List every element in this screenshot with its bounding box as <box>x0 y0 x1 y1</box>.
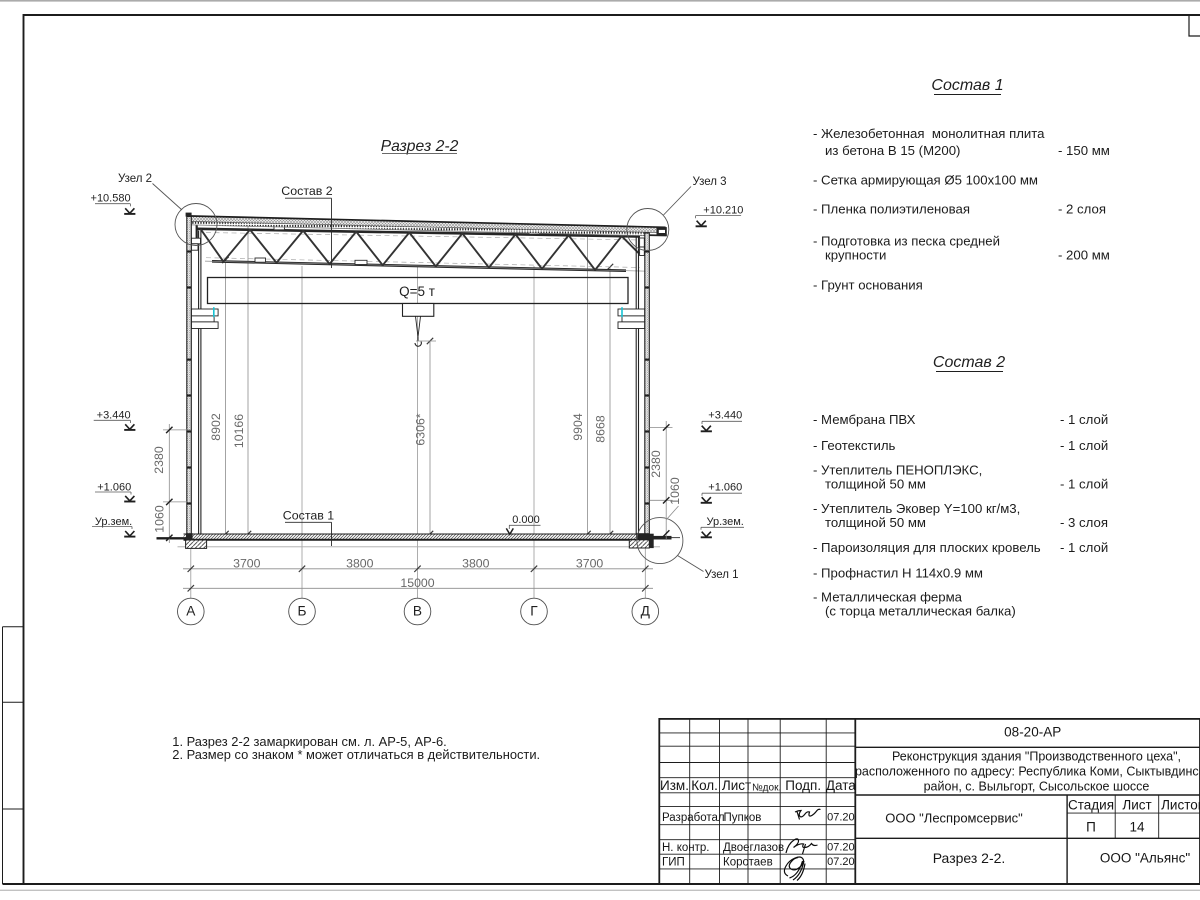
svg-text:Узел 2: Узел 2 <box>118 173 152 185</box>
svg-text:Состав 2: Состав 2 <box>281 184 332 198</box>
svg-text:3700: 3700 <box>576 557 604 571</box>
svg-text:Q=5 т: Q=5 т <box>399 284 435 299</box>
svg-text:А: А <box>186 604 196 619</box>
svg-text:Ур.зем.: Ур.зем. <box>95 516 132 528</box>
svg-text:Состав 1: Состав 1 <box>283 508 334 522</box>
svg-text:+1.060: +1.060 <box>97 481 131 493</box>
svg-text:- Грунт основания: - Грунт основания <box>813 278 923 293</box>
svg-text:Состав 1: Состав 1 <box>931 77 1003 94</box>
svg-text:- Мембрана ПВХ: - Мембрана ПВХ <box>813 412 916 427</box>
svg-text:- 1 слой: - 1 слой <box>1060 412 1108 427</box>
svg-text:1060: 1060 <box>668 477 682 505</box>
svg-text:Листов: Листов <box>1161 798 1200 813</box>
svg-text:- Сетка армирующая Ø5 100х100: - Сетка армирующая Ø5 100х100 мм <box>813 173 1038 188</box>
svg-text:0.000: 0.000 <box>512 514 540 526</box>
svg-text:14: 14 <box>1129 820 1145 835</box>
svg-text:- Пленка полиэтиленовая: - Пленка полиэтиленовая <box>813 202 970 217</box>
svg-text:П: П <box>1086 820 1096 835</box>
svg-text:1060: 1060 <box>153 505 167 533</box>
svg-text:Разработал: Разработал <box>662 812 725 824</box>
svg-text:8668: 8668 <box>594 415 608 443</box>
svg-text:из бетона В 15 (М200): из бетона В 15 (М200) <box>825 143 960 158</box>
svg-text:9904: 9904 <box>571 413 585 441</box>
svg-text:- 150 мм: - 150 мм <box>1058 143 1110 158</box>
svg-text:+3.440: +3.440 <box>97 409 131 421</box>
svg-text:- 3 слоя: - 3 слоя <box>1060 515 1108 530</box>
svg-text:расположенного по адресу: Респ: расположенного по адресу: Республика Ком… <box>855 765 1200 779</box>
svg-text:07.20: 07.20 <box>827 856 855 868</box>
svg-text:- Железобетонная монолитная п: - Железобетонная монолитная плита <box>813 126 1045 141</box>
svg-text:(с торца металлическая балка): (с торца металлическая балка) <box>825 604 1016 619</box>
svg-text:Н. контр.: Н. контр. <box>662 842 709 854</box>
svg-text:2380: 2380 <box>649 450 663 478</box>
svg-text:Пупков: Пупков <box>724 812 762 824</box>
svg-text:08-20-АР: 08-20-АР <box>1004 725 1061 740</box>
svg-text:Изм.: Изм. <box>660 778 689 793</box>
svg-text:- 1 слой: - 1 слой <box>1060 540 1108 555</box>
svg-text:2380: 2380 <box>152 446 166 474</box>
svg-text:район, с. Выльгорт, Сысольское: район, с. Выльгорт, Сысольское шоссе <box>924 779 1150 793</box>
svg-text:- Геотекстиль: - Геотекстиль <box>813 438 896 453</box>
svg-text:Кол.: Кол. <box>691 778 718 793</box>
svg-text:- Металлическая ферма: - Металлическая ферма <box>813 590 963 605</box>
svg-text:толщиной 50 мм: толщиной 50 мм <box>825 477 926 492</box>
svg-text:+10.210: +10.210 <box>703 204 743 216</box>
svg-text:ООО "Леспромсервис": ООО "Леспромсервис" <box>885 811 1023 826</box>
svg-text:- Утеплитель ПЕНОПЛЭКС,: - Утеплитель ПЕНОПЛЭКС, <box>813 463 982 478</box>
svg-text:Лист: Лист <box>1122 798 1151 813</box>
svg-text:ГИП: ГИП <box>662 856 685 868</box>
svg-text:07.20: 07.20 <box>827 842 855 854</box>
svg-text:крупности: крупности <box>825 248 886 263</box>
svg-text:- Профнастил Н 114х0.9 мм: - Профнастил Н 114х0.9 мм <box>813 566 983 581</box>
svg-text:+3.440: +3.440 <box>708 410 742 422</box>
svg-text:3800: 3800 <box>346 557 374 571</box>
svg-text:- 1 слой: - 1 слой <box>1060 438 1108 453</box>
svg-text:Д: Д <box>641 604 651 619</box>
svg-text:В: В <box>413 604 422 619</box>
svg-text:Подп.: Подп. <box>785 778 821 793</box>
svg-text:Узел 1: Узел 1 <box>704 569 738 581</box>
svg-text:№док.: №док. <box>752 783 781 794</box>
svg-text:+10.580: +10.580 <box>91 192 131 204</box>
svg-text:2. Размер со знаком * может от: 2. Размер со знаком * может отличаться в… <box>172 747 540 762</box>
svg-text:- 2 слоя: - 2 слоя <box>1058 202 1106 217</box>
svg-text:Разрез 2-2: Разрез 2-2 <box>381 138 459 155</box>
svg-text:10166: 10166 <box>232 414 246 448</box>
svg-text:Г: Г <box>530 604 538 619</box>
svg-text:8902: 8902 <box>209 413 223 441</box>
svg-text:Стадия: Стадия <box>1068 798 1114 813</box>
svg-text:3800: 3800 <box>462 557 490 571</box>
svg-text:15000: 15000 <box>400 576 434 590</box>
svg-text:- Подготовка из песка средней: - Подготовка из песка средней <box>813 234 1000 249</box>
svg-text:+1.060: +1.060 <box>708 482 742 494</box>
svg-text:3700: 3700 <box>233 557 261 571</box>
svg-text:Разрез 2-2.: Разрез 2-2. <box>933 850 1006 866</box>
svg-text:Лист: Лист <box>722 778 751 793</box>
svg-text:Ур.зем.: Ур.зем. <box>707 516 744 528</box>
svg-text:- Пароизоляция для плоских кро: - Пароизоляция для плоских кровель <box>813 540 1041 555</box>
svg-text:Коротаев: Коротаев <box>723 856 773 868</box>
svg-text:Состав 2: Состав 2 <box>933 354 1005 371</box>
svg-text:толщиной 50 мм: толщиной 50 мм <box>825 515 926 530</box>
svg-text:Двоеглазов: Двоеглазов <box>723 842 784 854</box>
svg-text:- 1 слой: - 1 слой <box>1060 477 1108 492</box>
svg-text:Узел 3: Узел 3 <box>692 176 726 188</box>
svg-text:Дата: Дата <box>826 778 856 793</box>
svg-text:07.20: 07.20 <box>827 812 855 824</box>
svg-text:Б: Б <box>298 604 307 619</box>
svg-text:Реконструкция здания "Производ: Реконструкция здания "Производственного … <box>892 749 1181 763</box>
svg-text:- 200 мм: - 200 мм <box>1058 248 1110 263</box>
svg-text:ООО "Альянс": ООО "Альянс" <box>1100 851 1190 866</box>
svg-text:6306*: 6306* <box>414 413 428 445</box>
svg-text:- Утеплитель Эковер Y=100 кг/м: - Утеплитель Эковер Y=100 кг/м3, <box>813 501 1020 516</box>
